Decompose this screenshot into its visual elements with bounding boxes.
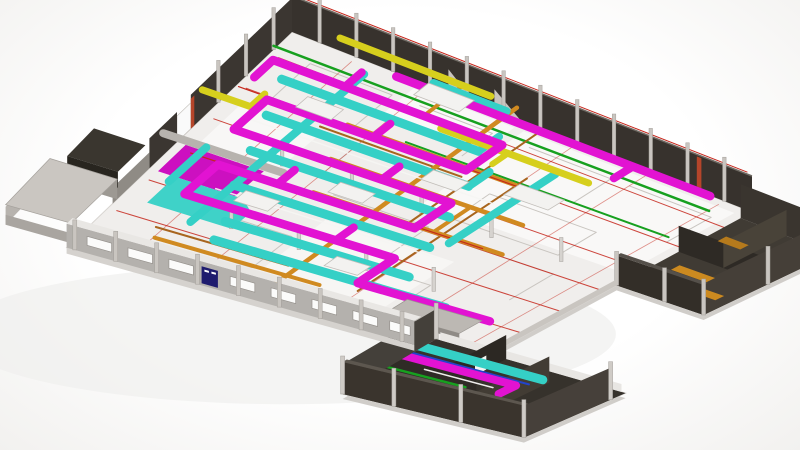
column <box>539 85 543 129</box>
column <box>244 34 248 76</box>
column <box>359 300 363 330</box>
column <box>318 0 322 43</box>
column <box>155 243 159 273</box>
wall-red-stripe <box>697 156 702 188</box>
bim-viewport <box>0 0 800 450</box>
column <box>114 231 118 261</box>
column <box>196 254 200 284</box>
column <box>400 311 404 341</box>
column <box>609 362 613 400</box>
column <box>236 266 240 296</box>
wall-red-stripe <box>191 96 195 129</box>
column <box>355 13 359 57</box>
column <box>459 384 463 422</box>
column <box>702 279 706 315</box>
column <box>560 238 564 262</box>
column <box>576 100 580 144</box>
column <box>434 303 438 339</box>
column <box>392 368 396 406</box>
column <box>428 42 432 86</box>
column <box>612 114 616 158</box>
column <box>432 267 436 291</box>
column <box>522 400 526 438</box>
column <box>341 356 345 394</box>
column <box>73 220 77 250</box>
column <box>649 128 653 172</box>
column <box>766 246 770 284</box>
bim-3d-view <box>0 0 800 450</box>
column <box>723 157 727 201</box>
column <box>277 277 281 307</box>
column <box>391 28 395 72</box>
column <box>686 143 690 187</box>
column <box>272 8 276 50</box>
column <box>318 289 322 319</box>
column <box>663 268 667 302</box>
